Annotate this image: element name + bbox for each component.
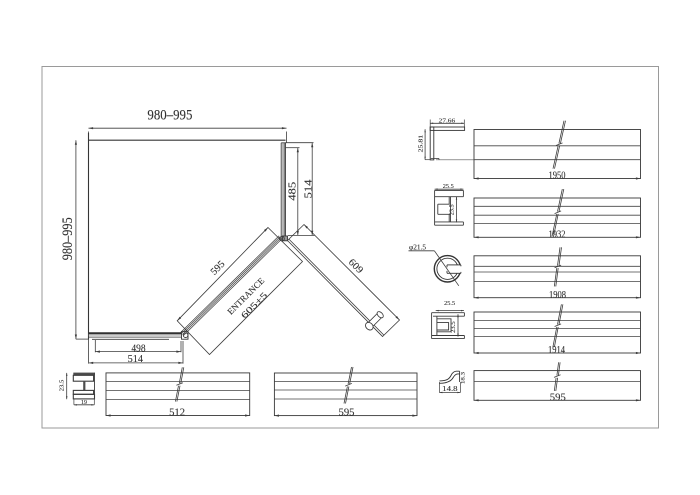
- svg-text:514: 514: [303, 179, 315, 199]
- svg-text:980–995: 980–995: [60, 217, 76, 260]
- svg-text:595: 595: [550, 391, 566, 403]
- svg-text:19: 19: [81, 399, 87, 406]
- svg-text:595: 595: [339, 407, 355, 419]
- svg-text:1932: 1932: [549, 229, 566, 240]
- svg-text:14.8: 14.8: [442, 385, 458, 393]
- svg-text:25.81: 25.81: [418, 135, 425, 153]
- svg-text:512: 512: [169, 407, 185, 419]
- svg-text:485: 485: [286, 181, 298, 201]
- svg-text:18.3: 18.3: [460, 372, 466, 384]
- svg-text:23.5: 23.5: [448, 204, 455, 215]
- svg-text:1950: 1950: [549, 171, 566, 182]
- svg-text:23.5: 23.5: [450, 321, 457, 333]
- svg-text:25.5: 25.5: [444, 300, 455, 307]
- svg-text:980–995: 980–995: [147, 108, 192, 124]
- svg-text:1914: 1914: [548, 345, 565, 356]
- svg-text:23.5: 23.5: [58, 380, 65, 392]
- svg-text:514: 514: [128, 353, 144, 365]
- svg-text:1908: 1908: [549, 290, 566, 301]
- svg-text:25.5: 25.5: [443, 183, 454, 190]
- svg-text:φ21.5: φ21.5: [409, 244, 427, 252]
- svg-text:27.66: 27.66: [439, 117, 455, 124]
